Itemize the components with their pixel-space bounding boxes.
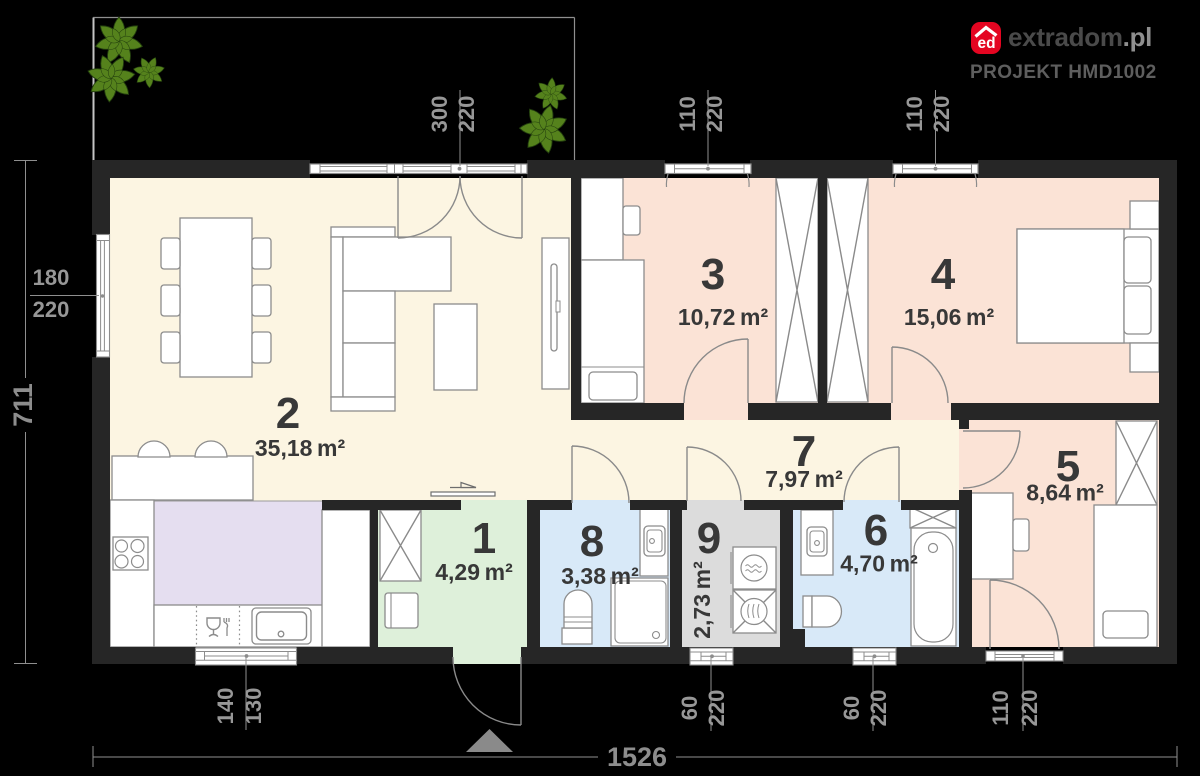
svg-text:60: 60 xyxy=(677,696,702,720)
svg-text:3: 3 xyxy=(701,250,725,299)
svg-text:711: 711 xyxy=(8,383,38,427)
svg-text:220: 220 xyxy=(702,96,727,133)
svg-text:3,38 m²: 3,38 m² xyxy=(561,563,639,589)
svg-text:9: 9 xyxy=(697,514,721,563)
svg-text:2,73 m²: 2,73 m² xyxy=(689,561,715,639)
svg-text:PROJEKT HMD1002: PROJEKT HMD1002 xyxy=(970,62,1157,83)
svg-text:220: 220 xyxy=(454,96,479,133)
svg-text:15,06 m²: 15,06 m² xyxy=(904,304,995,330)
svg-text:extradom.pl: extradom.pl xyxy=(1008,22,1152,52)
svg-text:35,18 m²: 35,18 m² xyxy=(255,435,346,461)
svg-text:ed: ed xyxy=(977,35,995,52)
svg-text:60: 60 xyxy=(839,696,864,720)
svg-text:1: 1 xyxy=(472,514,496,563)
svg-text:10,72 m²: 10,72 m² xyxy=(678,304,769,330)
svg-text:180: 180 xyxy=(33,265,70,290)
svg-text:220: 220 xyxy=(704,690,729,727)
svg-text:220: 220 xyxy=(1017,690,1042,727)
svg-text:4,70 m²: 4,70 m² xyxy=(840,551,918,577)
svg-text:140: 140 xyxy=(213,688,238,725)
svg-text:8: 8 xyxy=(580,517,604,566)
svg-text:4: 4 xyxy=(931,250,956,299)
svg-text:110: 110 xyxy=(988,690,1013,726)
svg-text:300: 300 xyxy=(427,96,452,133)
svg-text:7,97 m²: 7,97 m² xyxy=(765,466,843,492)
svg-text:220: 220 xyxy=(929,96,954,133)
svg-text:110: 110 xyxy=(675,96,700,132)
svg-text:110: 110 xyxy=(902,96,927,132)
svg-text:4,29 m²: 4,29 m² xyxy=(435,559,513,585)
svg-text:8,64 m²: 8,64 m² xyxy=(1026,480,1104,506)
svg-text:6: 6 xyxy=(864,506,888,555)
svg-text:220: 220 xyxy=(866,690,891,727)
svg-text:2: 2 xyxy=(276,389,300,438)
svg-text:130: 130 xyxy=(241,688,266,725)
svg-text:220: 220 xyxy=(33,297,70,322)
svg-text:1526: 1526 xyxy=(607,742,667,772)
